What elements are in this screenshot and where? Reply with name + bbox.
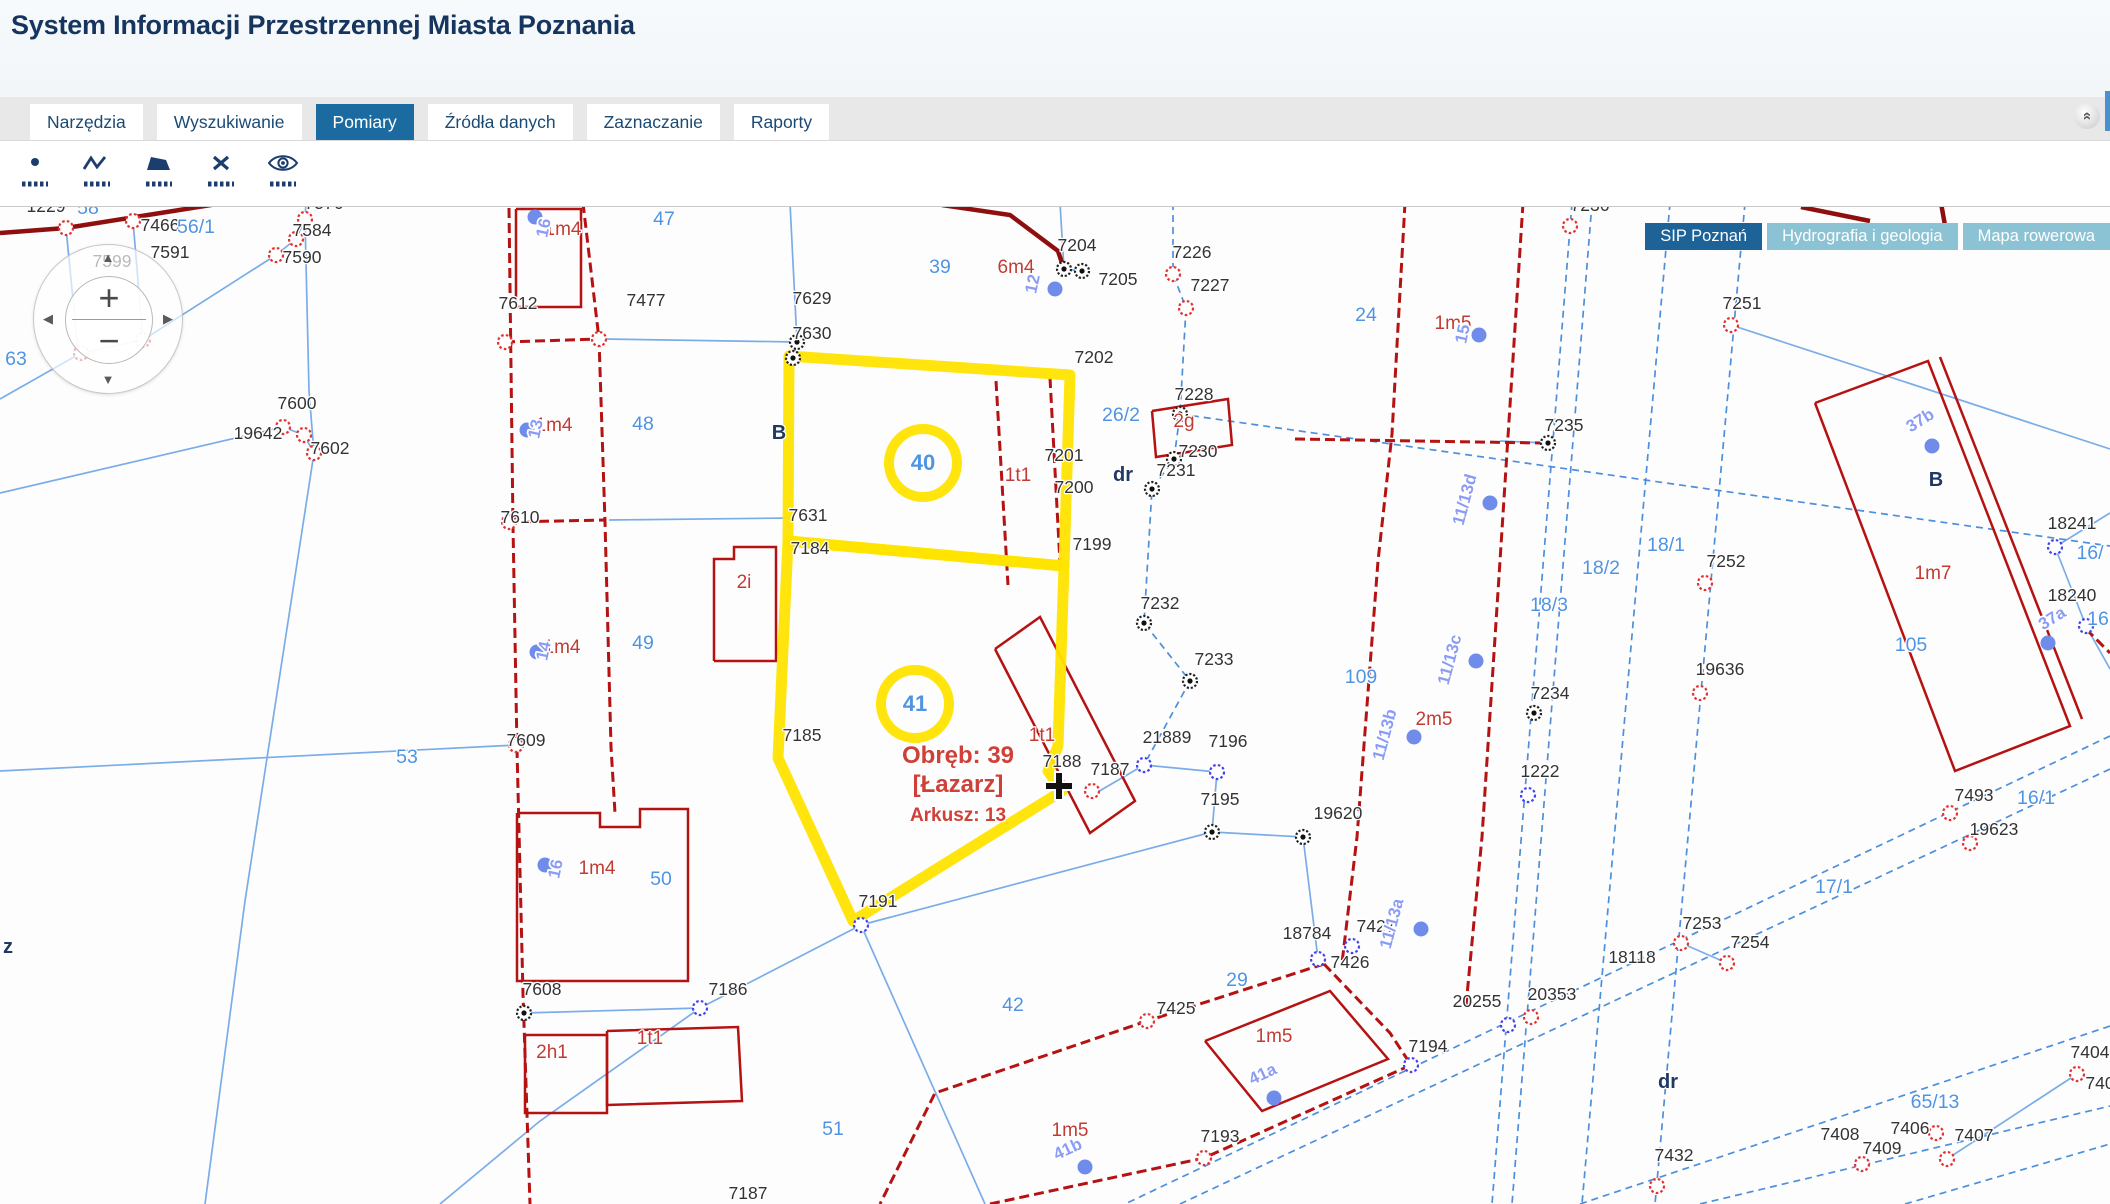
chevrons-up-icon: « xyxy=(2074,112,2100,120)
zoom-buttons: + − xyxy=(65,276,153,364)
address-label: 12 xyxy=(1021,273,1044,295)
boundary-vertex-red xyxy=(1166,267,1180,281)
boundary-vertex-red xyxy=(269,248,283,262)
boundary-vertex-blue xyxy=(1137,758,1151,772)
parcel-point-label: 7196 xyxy=(1209,731,1248,751)
street-label: dr xyxy=(1658,1071,1678,1093)
boundary-line-blue xyxy=(524,1008,700,1013)
boundary-vertex-red xyxy=(1698,576,1712,590)
boundary-vertex-black-dot xyxy=(521,1010,526,1015)
boundary-vertex-red xyxy=(1674,936,1688,950)
parcel-number-label: 58 xyxy=(77,206,99,219)
parcel-point-label: 7187 xyxy=(1091,759,1130,779)
building-outline-red xyxy=(1940,357,2082,719)
parcel-point-label: 7253 xyxy=(1683,913,1722,933)
measure-visibility-button[interactable] xyxy=(262,151,304,197)
active-region-info: Arkusz: 13 xyxy=(910,805,1006,826)
parcel-line-red xyxy=(583,206,615,813)
map-canvas[interactable]: 1229746675767584759175997590760019642760… xyxy=(0,206,2110,1204)
parcel-point-label: 7236 xyxy=(1571,206,1610,215)
parcel-point-label: 7232 xyxy=(1141,593,1180,613)
boundary-vertex-blue xyxy=(1345,939,1359,953)
measure-point-button[interactable] xyxy=(14,151,56,197)
address-label: 37b xyxy=(1903,405,1938,437)
parcel-line-red xyxy=(509,208,530,1204)
parcel-number-label: 47 xyxy=(653,208,675,230)
boundary-vertex-blue xyxy=(1210,765,1224,779)
parcel-point-label: 7466 xyxy=(141,215,180,235)
active-region-info: [Łazarz] xyxy=(913,771,1004,798)
boundary-line-blue xyxy=(1212,832,1303,837)
measure-clear-button[interactable] xyxy=(200,151,242,197)
address-label: 11/13d xyxy=(1449,472,1481,527)
scroll-edge[interactable] xyxy=(2105,91,2110,131)
parcel-point-label: 7610 xyxy=(501,507,540,527)
tab-raporty[interactable]: Raporty xyxy=(734,104,829,140)
tab-bar: NarzędziaWyszukiwaniePomiaryŹródła danyc… xyxy=(0,97,2110,141)
measure-point-icon xyxy=(15,153,55,193)
boundary-vertex-blue xyxy=(2048,540,2062,554)
building-outline-red xyxy=(714,547,776,661)
parcel-point-label: 7195 xyxy=(1201,789,1240,809)
street-label: B xyxy=(772,422,786,444)
parcel-point-label: 7185 xyxy=(783,725,822,745)
measure-area-icon xyxy=(139,153,179,193)
parcel-point-label: 19620 xyxy=(1314,803,1363,823)
parcel-point-label: 7194 xyxy=(1409,1036,1448,1056)
parcel-line-red xyxy=(880,1021,1147,1204)
measure-clear-icon xyxy=(201,153,241,193)
parcel-number-label: 24 xyxy=(1355,304,1377,326)
parcel-point-label: 7408 xyxy=(1821,1124,1860,1144)
parcel-point-label: 1229 xyxy=(27,206,66,216)
boundary-line-blue xyxy=(609,518,790,520)
street-label: dr xyxy=(1113,464,1133,486)
highlight-parcel-number: 41 xyxy=(903,691,927,716)
parcel-number-label: 18/3 xyxy=(1530,594,1568,616)
building-label: 1t1 xyxy=(1029,725,1055,746)
building-label: 1t1 xyxy=(1005,465,1031,486)
parcel-number-label: 105 xyxy=(1895,634,1928,656)
building-edge-thick-red xyxy=(1801,207,1870,221)
address-point-dot xyxy=(1472,328,1487,343)
boundary-line-blue xyxy=(790,206,797,342)
parcel-point-label: 7201 xyxy=(1045,445,1084,465)
boundary-vertex-red xyxy=(498,335,512,349)
measure-line-button[interactable] xyxy=(76,151,118,197)
tab-narzędzia[interactable]: Narzędzia xyxy=(30,104,143,140)
street-label: B xyxy=(1929,469,1943,491)
parcel-line-red xyxy=(1324,964,1411,1065)
parcel-point-label: 21889 xyxy=(1143,727,1192,747)
tab-wyszukiwanie[interactable]: Wyszukiwanie xyxy=(157,104,302,140)
parcel-point-label: 19636 xyxy=(1696,659,1745,679)
boundary-vertex-black-dot xyxy=(1079,268,1084,273)
parcel-point-label: 7191 xyxy=(859,891,898,911)
parcel-point-label: 7188 xyxy=(1043,751,1082,771)
parcel-number-label: 29 xyxy=(1226,969,1248,991)
boundary-vertex-red xyxy=(1197,1151,1211,1165)
parcel-point-label: 7409 xyxy=(1863,1138,1902,1158)
pan-west-button[interactable]: ◀ xyxy=(37,308,59,330)
address-point-dot xyxy=(2041,636,2056,651)
boundary-line-blue xyxy=(1947,1074,2077,1159)
building-outline-red xyxy=(517,809,688,981)
ribbon: NarzędziaWyszukiwaniePomiaryŹródła danyc… xyxy=(0,97,2110,206)
parcel-line-red xyxy=(1050,378,1060,563)
address-label: 41a xyxy=(1246,1059,1280,1088)
parcel-point-label: 7205 xyxy=(1099,269,1138,289)
boundary-vertex-black-dot xyxy=(1149,486,1154,491)
parcel-number-label: 49 xyxy=(632,632,654,654)
boundary-vertex-black-dot xyxy=(1141,620,1146,625)
boundary-vertex-blue xyxy=(1311,952,1325,966)
address-point-dot xyxy=(1414,922,1429,937)
pan-south-button[interactable]: ▼ xyxy=(97,369,119,391)
boundary-line-blue-dashed xyxy=(1905,1144,2110,1204)
parcel-point-label: 20353 xyxy=(1528,984,1577,1004)
parcel-point-label: 7254 xyxy=(1731,932,1770,952)
tab-pomiary[interactable]: Pomiary xyxy=(316,104,414,140)
map-drawing: 1229746675767584759175997590760019642760… xyxy=(0,206,2110,1204)
parcel-point-label: 7407 xyxy=(1955,1125,1994,1145)
boundary-vertex-black-dot xyxy=(1061,266,1066,271)
boundary-vertex-blue xyxy=(693,1001,707,1015)
parcel-point-label: 19623 xyxy=(1970,819,2019,839)
boundary-vertex-black-dot xyxy=(1187,678,1192,683)
parcel-point-label: 18241 xyxy=(2048,513,2097,533)
building-label: 2g xyxy=(1173,411,1194,432)
boundary-vertex-red xyxy=(1085,784,1099,798)
boundary-vertex-black-dot xyxy=(1300,834,1305,839)
building-label: 1m7 xyxy=(1915,563,1952,584)
boundary-vertex-black-dot xyxy=(1531,710,1536,715)
parcel-point-label: 18784 xyxy=(1283,923,1332,943)
parcel-point-label: 7609 xyxy=(507,730,546,750)
boundary-vertex-red xyxy=(1855,1157,1869,1171)
boundary-vertex-blue xyxy=(1404,1058,1418,1072)
parcel-line-red xyxy=(505,339,599,342)
boundary-vertex-red xyxy=(1563,219,1577,233)
parcel-number-label: 48 xyxy=(632,413,654,435)
measure-visibility-icon xyxy=(263,153,303,193)
address-point-dot xyxy=(1469,654,1484,669)
address-label: 16 xyxy=(532,217,555,239)
collapse-ribbon-button[interactable]: « xyxy=(2074,103,2100,129)
boundary-line-blue xyxy=(604,339,797,342)
parcel-point-label: 19642 xyxy=(234,423,283,443)
parcel-number-label: 16/ xyxy=(2076,542,2104,564)
boundary-line-blue-dashed xyxy=(1582,206,1670,1204)
measure-area-button[interactable] xyxy=(138,151,180,197)
parcel-point-label: 7629 xyxy=(793,288,832,308)
address-label: 16 xyxy=(544,858,567,880)
boundary-line-blue xyxy=(205,453,314,1204)
boundary-vertex-black-dot xyxy=(790,355,795,360)
address-point-dot xyxy=(1407,730,1422,745)
street-label: z xyxy=(3,936,13,958)
parcel-number-label: 26/2 xyxy=(1102,404,1140,426)
app-header: System Informacji Przestrzennej Miasta P… xyxy=(0,0,2110,97)
parcel-point-label: 7233 xyxy=(1195,649,1234,669)
parcel-point-label: 7404 xyxy=(2071,1042,2110,1062)
address-point-dot xyxy=(1267,1091,1282,1106)
parcel-number-label: 42 xyxy=(1002,994,1024,1016)
parcel-point-label: 20255 xyxy=(1453,991,1502,1011)
measure-toolbar xyxy=(0,141,2110,205)
highlight-parcel-number: 40 xyxy=(911,450,935,475)
parcel-point-label: 7186 xyxy=(709,979,748,999)
tab-zaznaczanie[interactable]: Zaznaczanie xyxy=(587,104,720,140)
address-label: 11/13b xyxy=(1369,707,1401,762)
parcel-point-label: 7426 xyxy=(1331,952,1370,972)
address-point-dot xyxy=(1078,1160,1093,1175)
address-point-dot xyxy=(1048,282,1063,297)
parcel-point-label: 7590 xyxy=(283,247,322,267)
parcel-line-red xyxy=(2086,629,2110,653)
parcel-point-label: 7231 xyxy=(1157,460,1196,480)
parcel-point-label: 7184 xyxy=(791,538,830,558)
boundary-vertex-red xyxy=(1140,1014,1154,1028)
parcel-point-label: 18240 xyxy=(2048,585,2097,605)
parcel-number-label: 50 xyxy=(650,868,672,890)
measure-line-icon xyxy=(77,153,117,193)
parcel-point-label: 7600 xyxy=(278,393,317,413)
boundary-vertex-red xyxy=(1929,1126,1943,1140)
parcel-point-label: 1222 xyxy=(1521,761,1560,781)
parcel-point-label: 7252 xyxy=(1707,551,1746,571)
parcel-number-label: 18/1 xyxy=(1647,534,1685,556)
parcel-number-label: 63 xyxy=(5,348,27,370)
address-point-dot xyxy=(1925,439,1940,454)
address-label: 15 xyxy=(1451,323,1474,345)
parcel-point-label: 7477 xyxy=(627,290,666,310)
pan-north-button[interactable]: ▲ xyxy=(97,247,119,269)
parcel-point-label: 7432 xyxy=(1655,1145,1694,1165)
boundary-vertex-red xyxy=(297,428,311,442)
parcel-point-label: 7631 xyxy=(789,505,828,525)
map-zoom-control: ▲ ▼ ◀ ▶ + − xyxy=(33,244,183,394)
boundary-line-blue xyxy=(0,745,516,771)
boundary-vertex-red xyxy=(1724,318,1738,332)
parcel-number-label: 53 xyxy=(396,746,418,768)
parcel-point-label: 7425 xyxy=(1157,998,1196,1018)
boundary-vertex-red xyxy=(126,214,140,228)
parcel-line-red xyxy=(1466,206,1523,1006)
address-label: 11/13c xyxy=(1434,632,1466,686)
building-label: 1m4 xyxy=(579,858,616,879)
basemap-hydrografia-i-geologia[interactable]: Hydrografia i geologia xyxy=(1767,223,1958,250)
basemap-mapa-rowerowa[interactable]: Mapa rowerowa xyxy=(1963,223,2110,250)
boundary-vertex-blue xyxy=(1501,1018,1515,1032)
boundary-vertex-red xyxy=(1720,956,1734,970)
tab-źródła-danych[interactable]: Źródła danych xyxy=(428,104,573,140)
parcel-point-label: 7228 xyxy=(1175,384,1214,404)
boundary-vertex-red xyxy=(592,332,606,346)
parcel-number-label: 17/1 xyxy=(1815,876,1853,898)
parcel-point-label: 7612 xyxy=(499,293,538,313)
parcel-point-label: 7202 xyxy=(1075,347,1114,367)
parcel-point-label: 7200 xyxy=(1055,477,1094,497)
building-label: 2i xyxy=(737,572,752,593)
parcel-number-label: 65/13 xyxy=(1911,1091,1960,1113)
parcel-point-label: 7199 xyxy=(1073,534,1112,554)
parcel-point-label: 7608 xyxy=(523,979,562,999)
parcel-point-label: 7227 xyxy=(1191,275,1230,295)
parcel-point-label: 7602 xyxy=(311,438,350,458)
parcel-number-label: 16/1 xyxy=(2017,787,2055,809)
parcel-point-label: 740 xyxy=(2085,1073,2110,1093)
basemap-sip-poznań[interactable]: SIP Poznań xyxy=(1645,223,1762,250)
app-title: System Informacji Przestrzennej Miasta P… xyxy=(0,0,2110,41)
building-label: 1t1 xyxy=(637,1028,663,1049)
parcel-point-label: 7493 xyxy=(1955,785,1994,805)
building-label: 2h1 xyxy=(536,1042,568,1063)
boundary-vertex-red xyxy=(1940,1152,1954,1166)
boundary-line-blue-dashed xyxy=(1512,206,1592,1204)
building-outline-red xyxy=(607,1027,742,1105)
boundary-vertex-red xyxy=(1693,686,1707,700)
basemap-switcher: SIP PoznańHydrografia i geologiaMapa row… xyxy=(1645,223,2110,250)
boundary-vertex-black-dot xyxy=(1209,829,1214,834)
parcel-point-label: 7630 xyxy=(793,323,832,343)
boundary-line-blue-dashed xyxy=(1580,1026,2110,1204)
boundary-vertex-red xyxy=(59,221,73,235)
parcel-number-label: 51 xyxy=(822,1118,844,1140)
parcel-point-label: 7234 xyxy=(1531,683,1570,703)
pan-east-button[interactable]: ▶ xyxy=(157,308,179,330)
active-region-info: Obręb: 39 xyxy=(902,742,1014,769)
boundary-vertex-black-dot xyxy=(1545,440,1550,445)
boundary-line-blue-dashed xyxy=(1492,206,1572,1204)
parcel-point-label: 7576 xyxy=(305,206,344,213)
boundary-line-blue xyxy=(861,925,985,1204)
parcel-number-label: 16 xyxy=(2087,608,2109,630)
parcel-point-label: 7193 xyxy=(1201,1126,1240,1146)
parcel-point-label: 7226 xyxy=(1173,242,1212,262)
parcel-point-label: 7187 xyxy=(729,1183,768,1203)
boundary-vertex-blue xyxy=(854,918,868,932)
boundary-vertex-blue xyxy=(1521,788,1535,802)
parcel-point-label: 7584 xyxy=(293,220,332,240)
address-label: 13 xyxy=(524,418,547,440)
parcel-number-label: 18/2 xyxy=(1582,557,1620,579)
address-point-dot xyxy=(1483,496,1498,511)
parcel-point-label: 7235 xyxy=(1545,415,1584,435)
boundary-vertex-red xyxy=(1943,806,1957,820)
parcel-point-label: 7251 xyxy=(1723,293,1762,313)
boundary-vertex-red xyxy=(1179,301,1193,315)
boundary-vertex-red xyxy=(2070,1067,2084,1081)
building-label: 1m5 xyxy=(1256,1026,1293,1047)
parcel-number-label: 109 xyxy=(1345,666,1378,688)
boundary-line-blue-dashed xyxy=(1655,206,1745,1204)
boundary-line-blue xyxy=(1144,765,1217,772)
boundary-vertex-red xyxy=(1650,1179,1664,1193)
address-label: 37a xyxy=(2035,602,2070,633)
parcel-point-label: 7406 xyxy=(1891,1118,1930,1138)
parcel-point-label: 18118 xyxy=(1608,947,1655,967)
parcel-point-label: 7230 xyxy=(1179,441,1218,461)
boundary-vertex-red xyxy=(1524,1010,1538,1024)
parcel-number-label: 39 xyxy=(929,256,951,278)
parcel-number-label: 56/1 xyxy=(177,216,215,238)
building-label: 2m5 xyxy=(1416,709,1453,730)
parcel-point-label: 7204 xyxy=(1058,235,1097,255)
